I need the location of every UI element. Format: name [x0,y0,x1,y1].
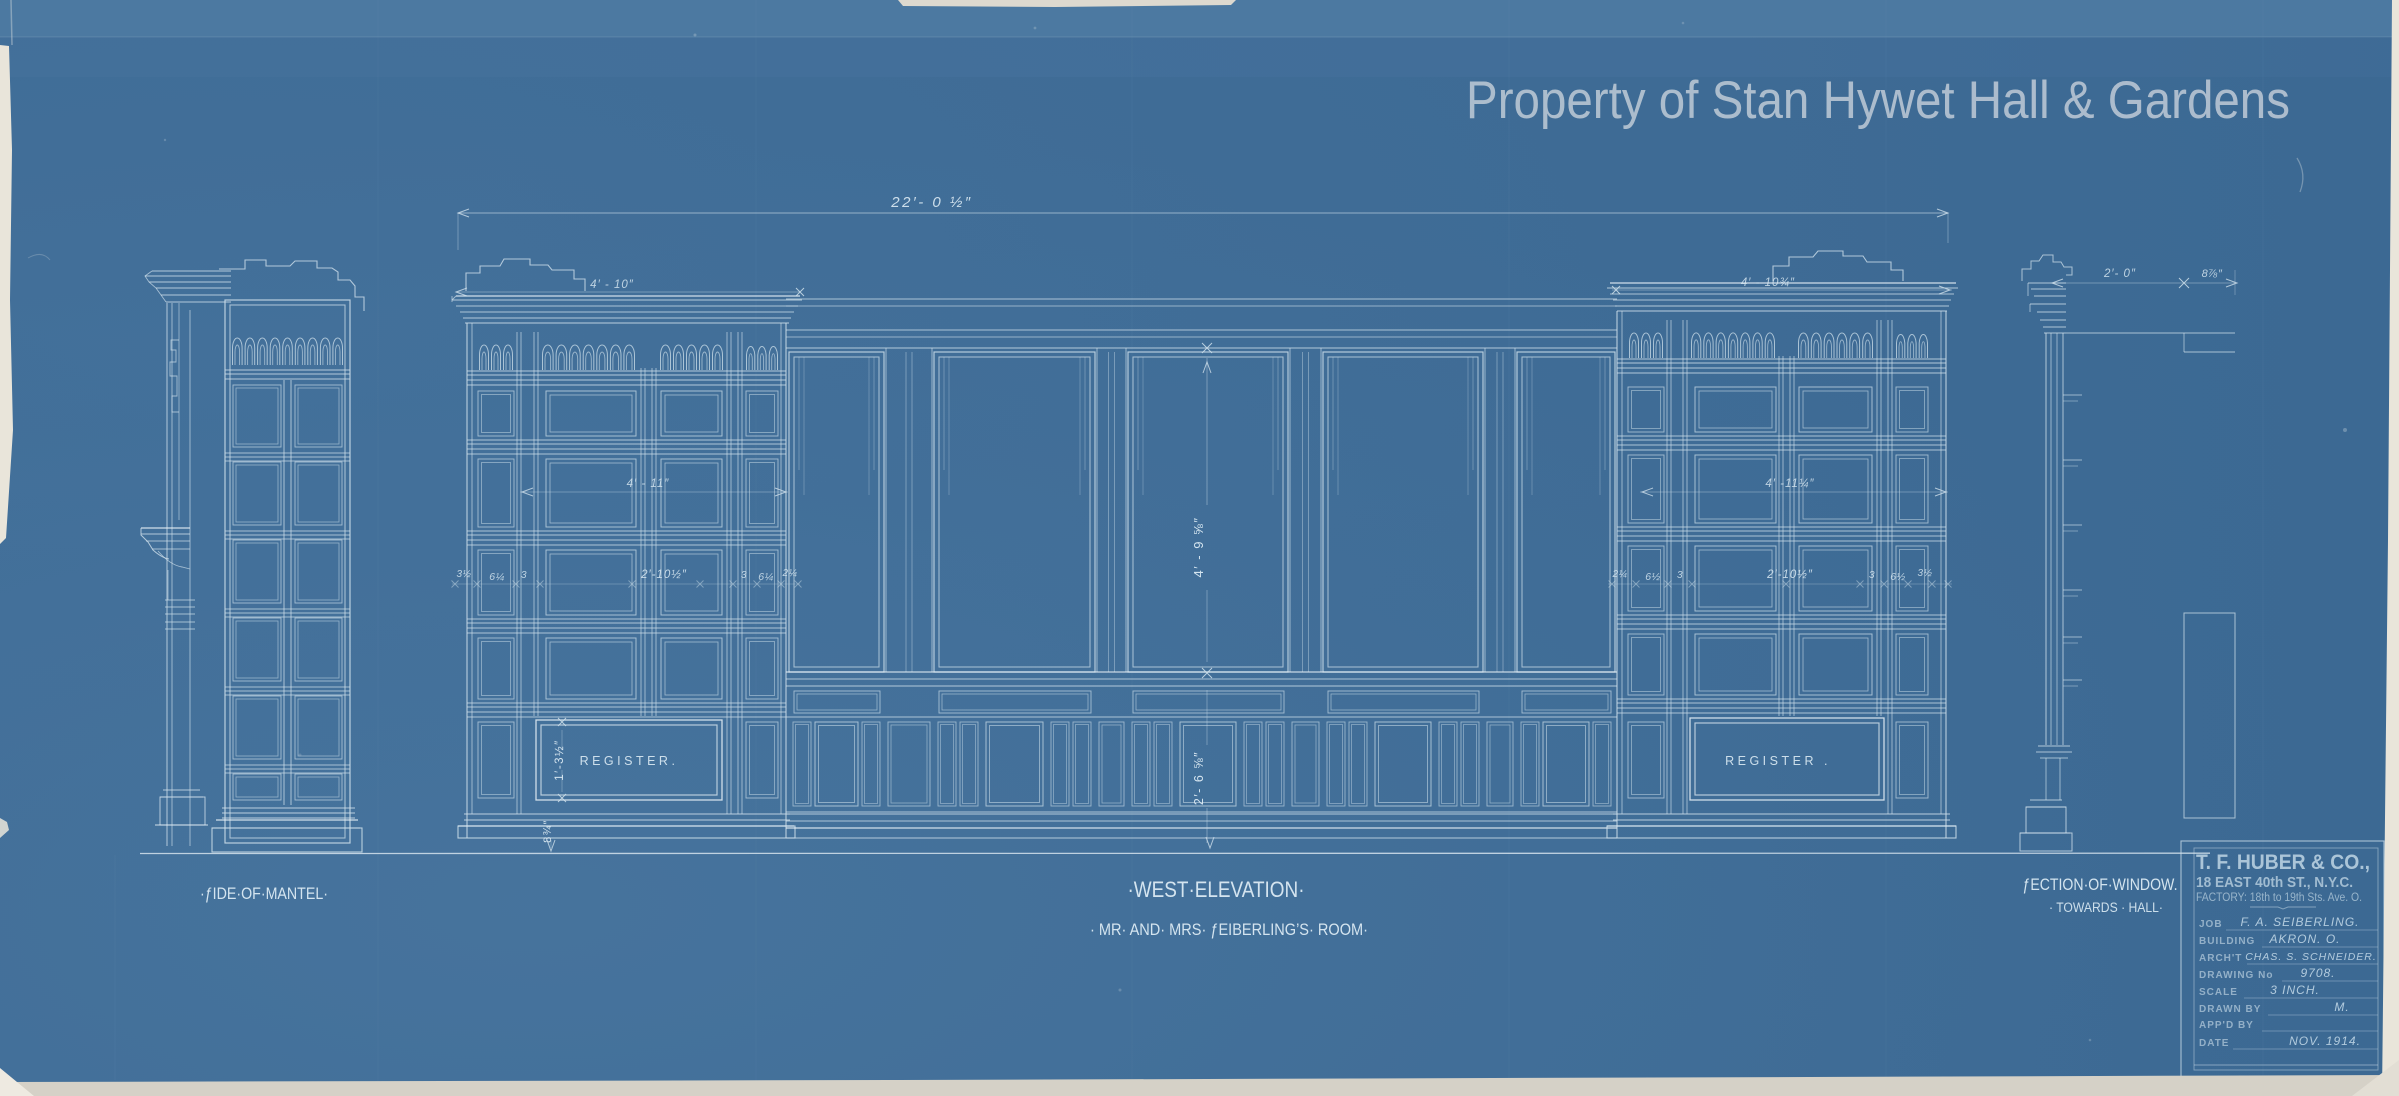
svg-text:6¼: 6¼ [758,571,774,583]
svg-text:3: 3 [1869,570,1875,581]
svg-text:1′-3½″: 1′-3½″ [554,739,566,780]
svg-text:·ƒIDE·OF·MANTEL·: ·ƒIDE·OF·MANTEL· [200,884,328,903]
svg-text:4′ -11¼″: 4′ -11¼″ [1765,478,1814,490]
svg-text:AKRON. O.: AKRON. O. [2268,932,2340,946]
svg-text:·WEST·ELEVATION·: ·WEST·ELEVATION· [1128,877,1305,902]
svg-text:22′- 0 ½″: 22′- 0 ½″ [890,194,973,211]
svg-text:T. F. HUBER & CO.,: T. F. HUBER & CO., [2196,851,2370,874]
svg-text:M.: M. [2334,1000,2349,1014]
svg-text:4′ - 10″: 4′ - 10″ [590,279,634,291]
svg-text:APP'D BY: APP'D BY [2199,1020,2254,1031]
svg-text:6½: 6½ [1890,571,1906,583]
svg-text:ARCH'T: ARCH'T [2199,953,2242,964]
svg-text:3: 3 [741,570,747,581]
svg-text:8⅞″: 8⅞″ [2202,268,2223,280]
svg-text:FACTORY: 18th to 19th Sts. Ave: FACTORY: 18th to 19th Sts. Ave. O. [2196,892,2362,904]
svg-text:4′ - 10¾″: 4′ - 10¾″ [1741,277,1795,289]
svg-text:2¼: 2¼ [1612,568,1628,580]
svg-text:3: 3 [521,570,527,581]
svg-text:BUILDING: BUILDING [2199,936,2255,947]
svg-text:6½: 6½ [1645,571,1661,583]
svg-text:REGISTER .: REGISTER . [1725,754,1831,768]
svg-text:CHAS. S. SCHNEIDER.: CHAS. S. SCHNEIDER. [2245,951,2377,963]
svg-text:JOB: JOB [2199,919,2223,930]
svg-text:18 EAST 40th ST., N.Y.C.: 18 EAST 40th ST., N.Y.C. [2196,875,2353,891]
svg-text:ƒECTION·OF·WINDOW.: ƒECTION·OF·WINDOW. [2023,876,2178,894]
svg-text:NOV. 1914.: NOV. 1914. [2289,1034,2361,1048]
svg-text:DRAWN BY: DRAWN BY [2199,1004,2261,1015]
svg-text:8¾″: 8¾″ [542,819,554,843]
svg-text:9708.: 9708. [2300,966,2335,980]
svg-text:2′-10½″: 2′-10½″ [1766,569,1813,581]
svg-text:Property of Stan Hywet Hall &: Property of Stan Hywet Hall & Gardens [1466,71,2290,130]
svg-text:3½: 3½ [457,569,472,580]
svg-text:· TOWARDS · HALL·: · TOWARDS · HALL· [2049,900,2163,915]
svg-text:2′-10½″: 2′-10½″ [640,569,687,581]
svg-text:2′- 6 ⅝″: 2′- 6 ⅝″ [1192,751,1206,805]
svg-text:3½: 3½ [1918,568,1933,579]
svg-text:4′ - 11″: 4′ - 11″ [627,478,670,490]
svg-text:4′ - 9 ⅝″: 4′ - 9 ⅝″ [1191,516,1206,577]
svg-text:SCALE: SCALE [2199,987,2238,998]
svg-text:· MR· AND· MRS· ƒEIBERLING’S·: · MR· AND· MRS· ƒEIBERLING’S· ROOM· [1090,921,1368,939]
svg-text:DRAWING No: DRAWING No [2199,970,2273,981]
svg-text:3 INCH.: 3 INCH. [2270,983,2320,997]
svg-text:REGISTER.: REGISTER. [580,754,679,768]
svg-text:3: 3 [1677,570,1683,581]
svg-text:F. A. SEIBERLING.: F. A. SEIBERLING. [2240,915,2359,929]
svg-text:DATE: DATE [2199,1038,2229,1049]
svg-text:2′- 0″: 2′- 0″ [2103,268,2136,280]
svg-text:6¼: 6¼ [489,571,505,583]
